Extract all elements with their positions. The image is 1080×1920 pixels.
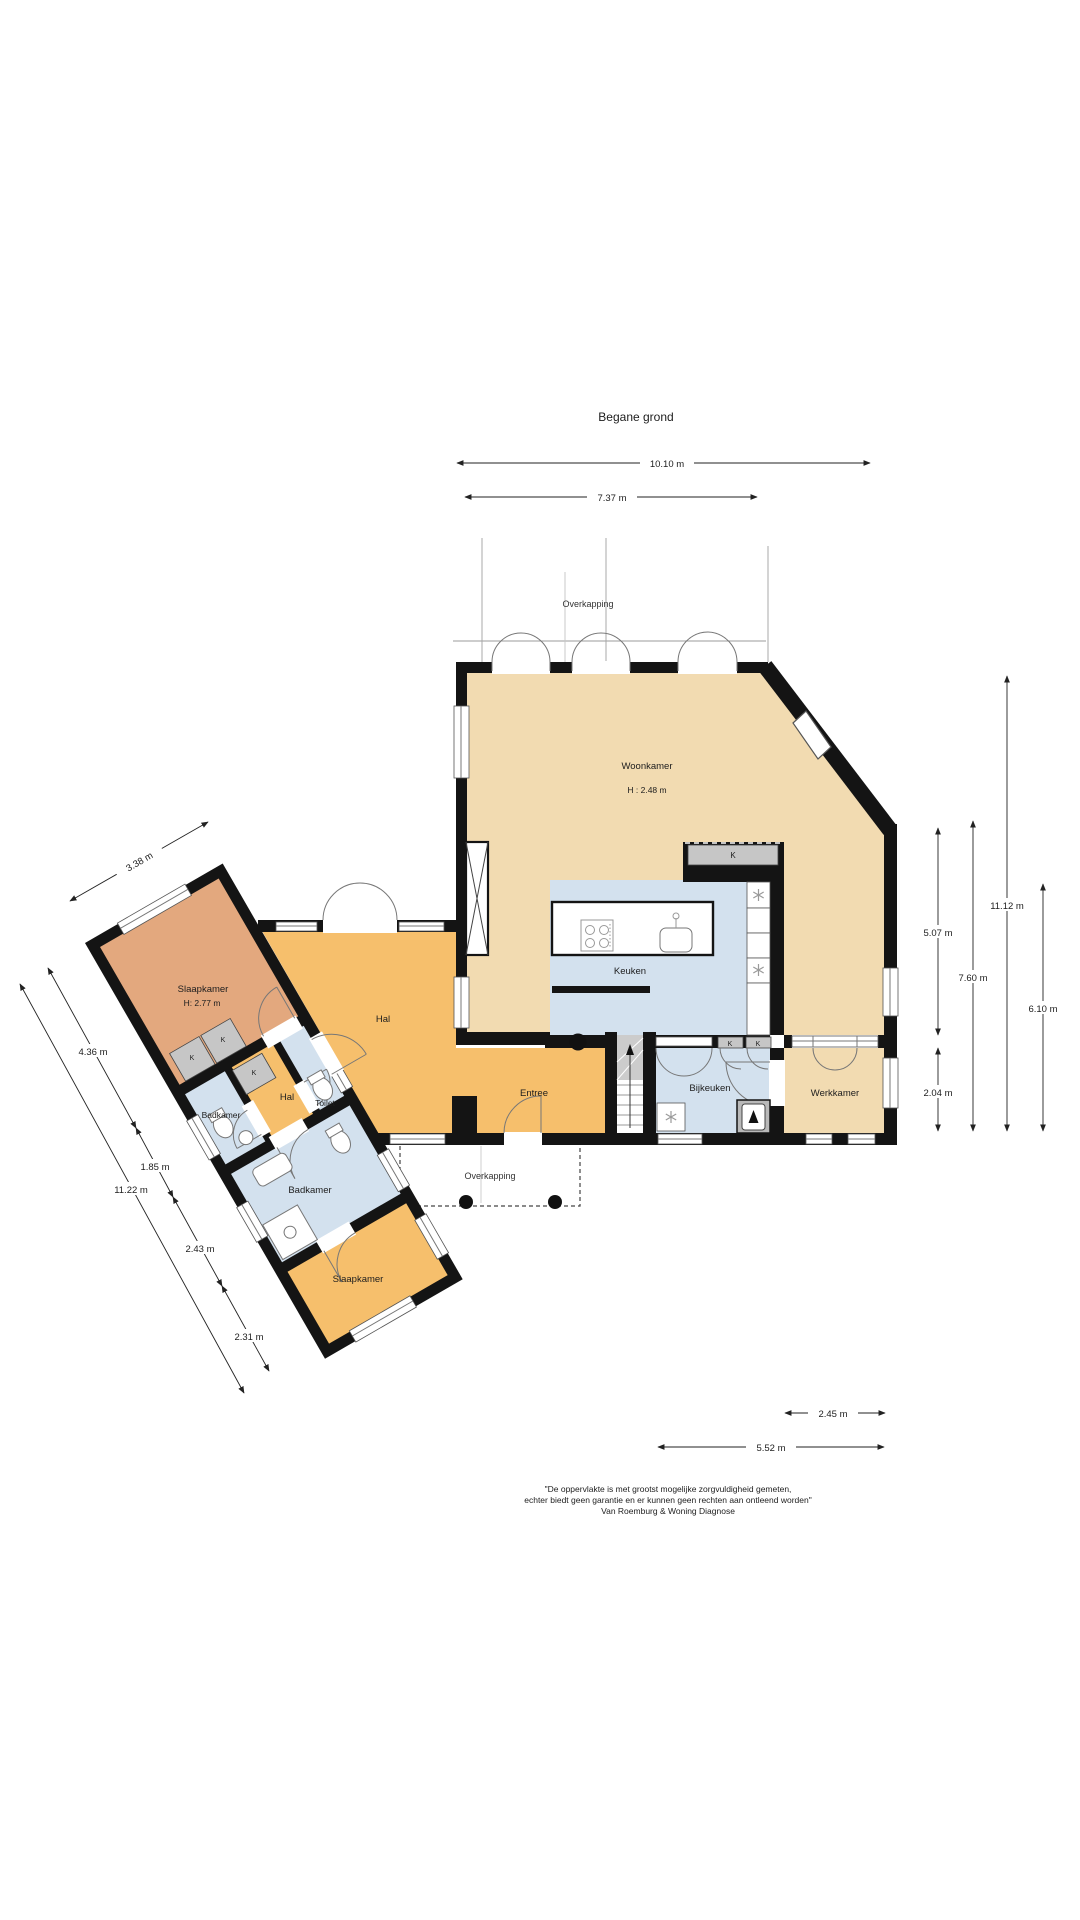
label-hal-klein: Hal (280, 1092, 294, 1103)
label-slaapkamer-boven-height: H: 2.77 m (184, 998, 221, 1008)
label-badkamer-groot: Badkamer (288, 1185, 331, 1196)
canopy-bottom-label: Overkapping (464, 1171, 515, 1181)
svg-text:1.85 m: 1.85 m (140, 1162, 169, 1173)
svg-text:7.37 m: 7.37 m (597, 493, 626, 504)
chimney-shaft (466, 842, 488, 955)
floorplan-page: Begane grond Overkapping (0, 0, 1080, 1920)
label-closet-k: K (221, 1037, 226, 1044)
svg-text:2.31 m: 2.31 m (234, 1332, 263, 1343)
svg-text:5.52 m: 5.52 m (756, 1443, 785, 1454)
dimension-right-2: 7.60 m (948, 821, 998, 1131)
label-slaapkamer-onder: Slaapkamer (333, 1274, 384, 1285)
dimension-top-inner: 7.37 m (465, 490, 757, 504)
label-toilet: Toilet (315, 1098, 335, 1108)
label-closet-k: K (728, 1041, 733, 1048)
label-closet-k: K (756, 1041, 761, 1048)
svg-text:2.43 m: 2.43 m (185, 1244, 214, 1255)
label-badkamer-klein: Badkamer (202, 1110, 241, 1120)
fridge-column (747, 882, 770, 1035)
dimension-right-5: 2.04 m (913, 1048, 963, 1131)
label-werkkamer: Werkkamer (811, 1088, 859, 1099)
canopy-post (459, 1195, 473, 1209)
label-closet-k: K (190, 1055, 195, 1062)
dimension-bottom-2: 5.52 m (658, 1440, 884, 1454)
svg-text:2.04 m: 2.04 m (923, 1088, 952, 1099)
svg-text:2.45 m: 2.45 m (818, 1409, 847, 1420)
dimension-right-3: 11.12 m (979, 676, 1035, 1131)
kitchen-island (552, 902, 713, 955)
top-wall-doors (492, 632, 737, 674)
svg-text:10.10 m: 10.10 m (650, 459, 684, 470)
label-hal: Hal (376, 1014, 390, 1025)
label-slaapkamer-boven: Slaapkamer (178, 984, 229, 995)
canopy-post (548, 1195, 562, 1209)
svg-text:4.36 m: 4.36 m (78, 1047, 107, 1058)
disclaimer: "De oppervlakte is met grootst mogelijke… (524, 1484, 812, 1516)
svg-text:6.10 m: 6.10 m (1028, 1004, 1057, 1015)
svg-text:5.07 m: 5.07 m (923, 928, 952, 939)
label-bijkeuken: Bijkeuken (689, 1083, 730, 1094)
kitchen-counter (552, 986, 650, 993)
floorplan-canvas: Begane grond Overkapping (0, 0, 1080, 1920)
structural-column (570, 1034, 587, 1051)
svg-text:"De oppervlakte is met grootst: "De oppervlakte is met grootst mogelijke… (545, 1484, 792, 1494)
canopy-top-label: Overkapping (562, 599, 613, 609)
svg-text:7.60 m: 7.60 m (958, 973, 987, 984)
label-entree: Entree (520, 1088, 548, 1099)
svg-text:11.22 m: 11.22 m (114, 1185, 148, 1196)
label-woonkamer: Woonkamer (621, 761, 672, 772)
dimension-right-4: 6.10 m (1018, 884, 1068, 1131)
svg-text:11.12 m: 11.12 m (990, 901, 1024, 912)
label-closet-k: K (730, 851, 736, 860)
svg-text:echter biedt geen garantie en: echter biedt geen garantie en er kunnen … (524, 1495, 812, 1505)
dimension-top-total: 10.10 m (457, 456, 870, 470)
dimension-bottom-1: 2.45 m (785, 1406, 885, 1420)
hal-top-wall-openings (276, 883, 444, 933)
dimension-right-1: 5.07 m (913, 828, 963, 1035)
page-title: Begane grond (598, 410, 673, 424)
label-woonkamer-height: H : 2.48 m (627, 785, 666, 795)
label-closet-k: K (252, 1070, 257, 1077)
svg-text:Van Roemburg & Woning Diagnose: Van Roemburg & Woning Diagnose (601, 1506, 735, 1516)
label-keuken: Keuken (614, 966, 646, 977)
